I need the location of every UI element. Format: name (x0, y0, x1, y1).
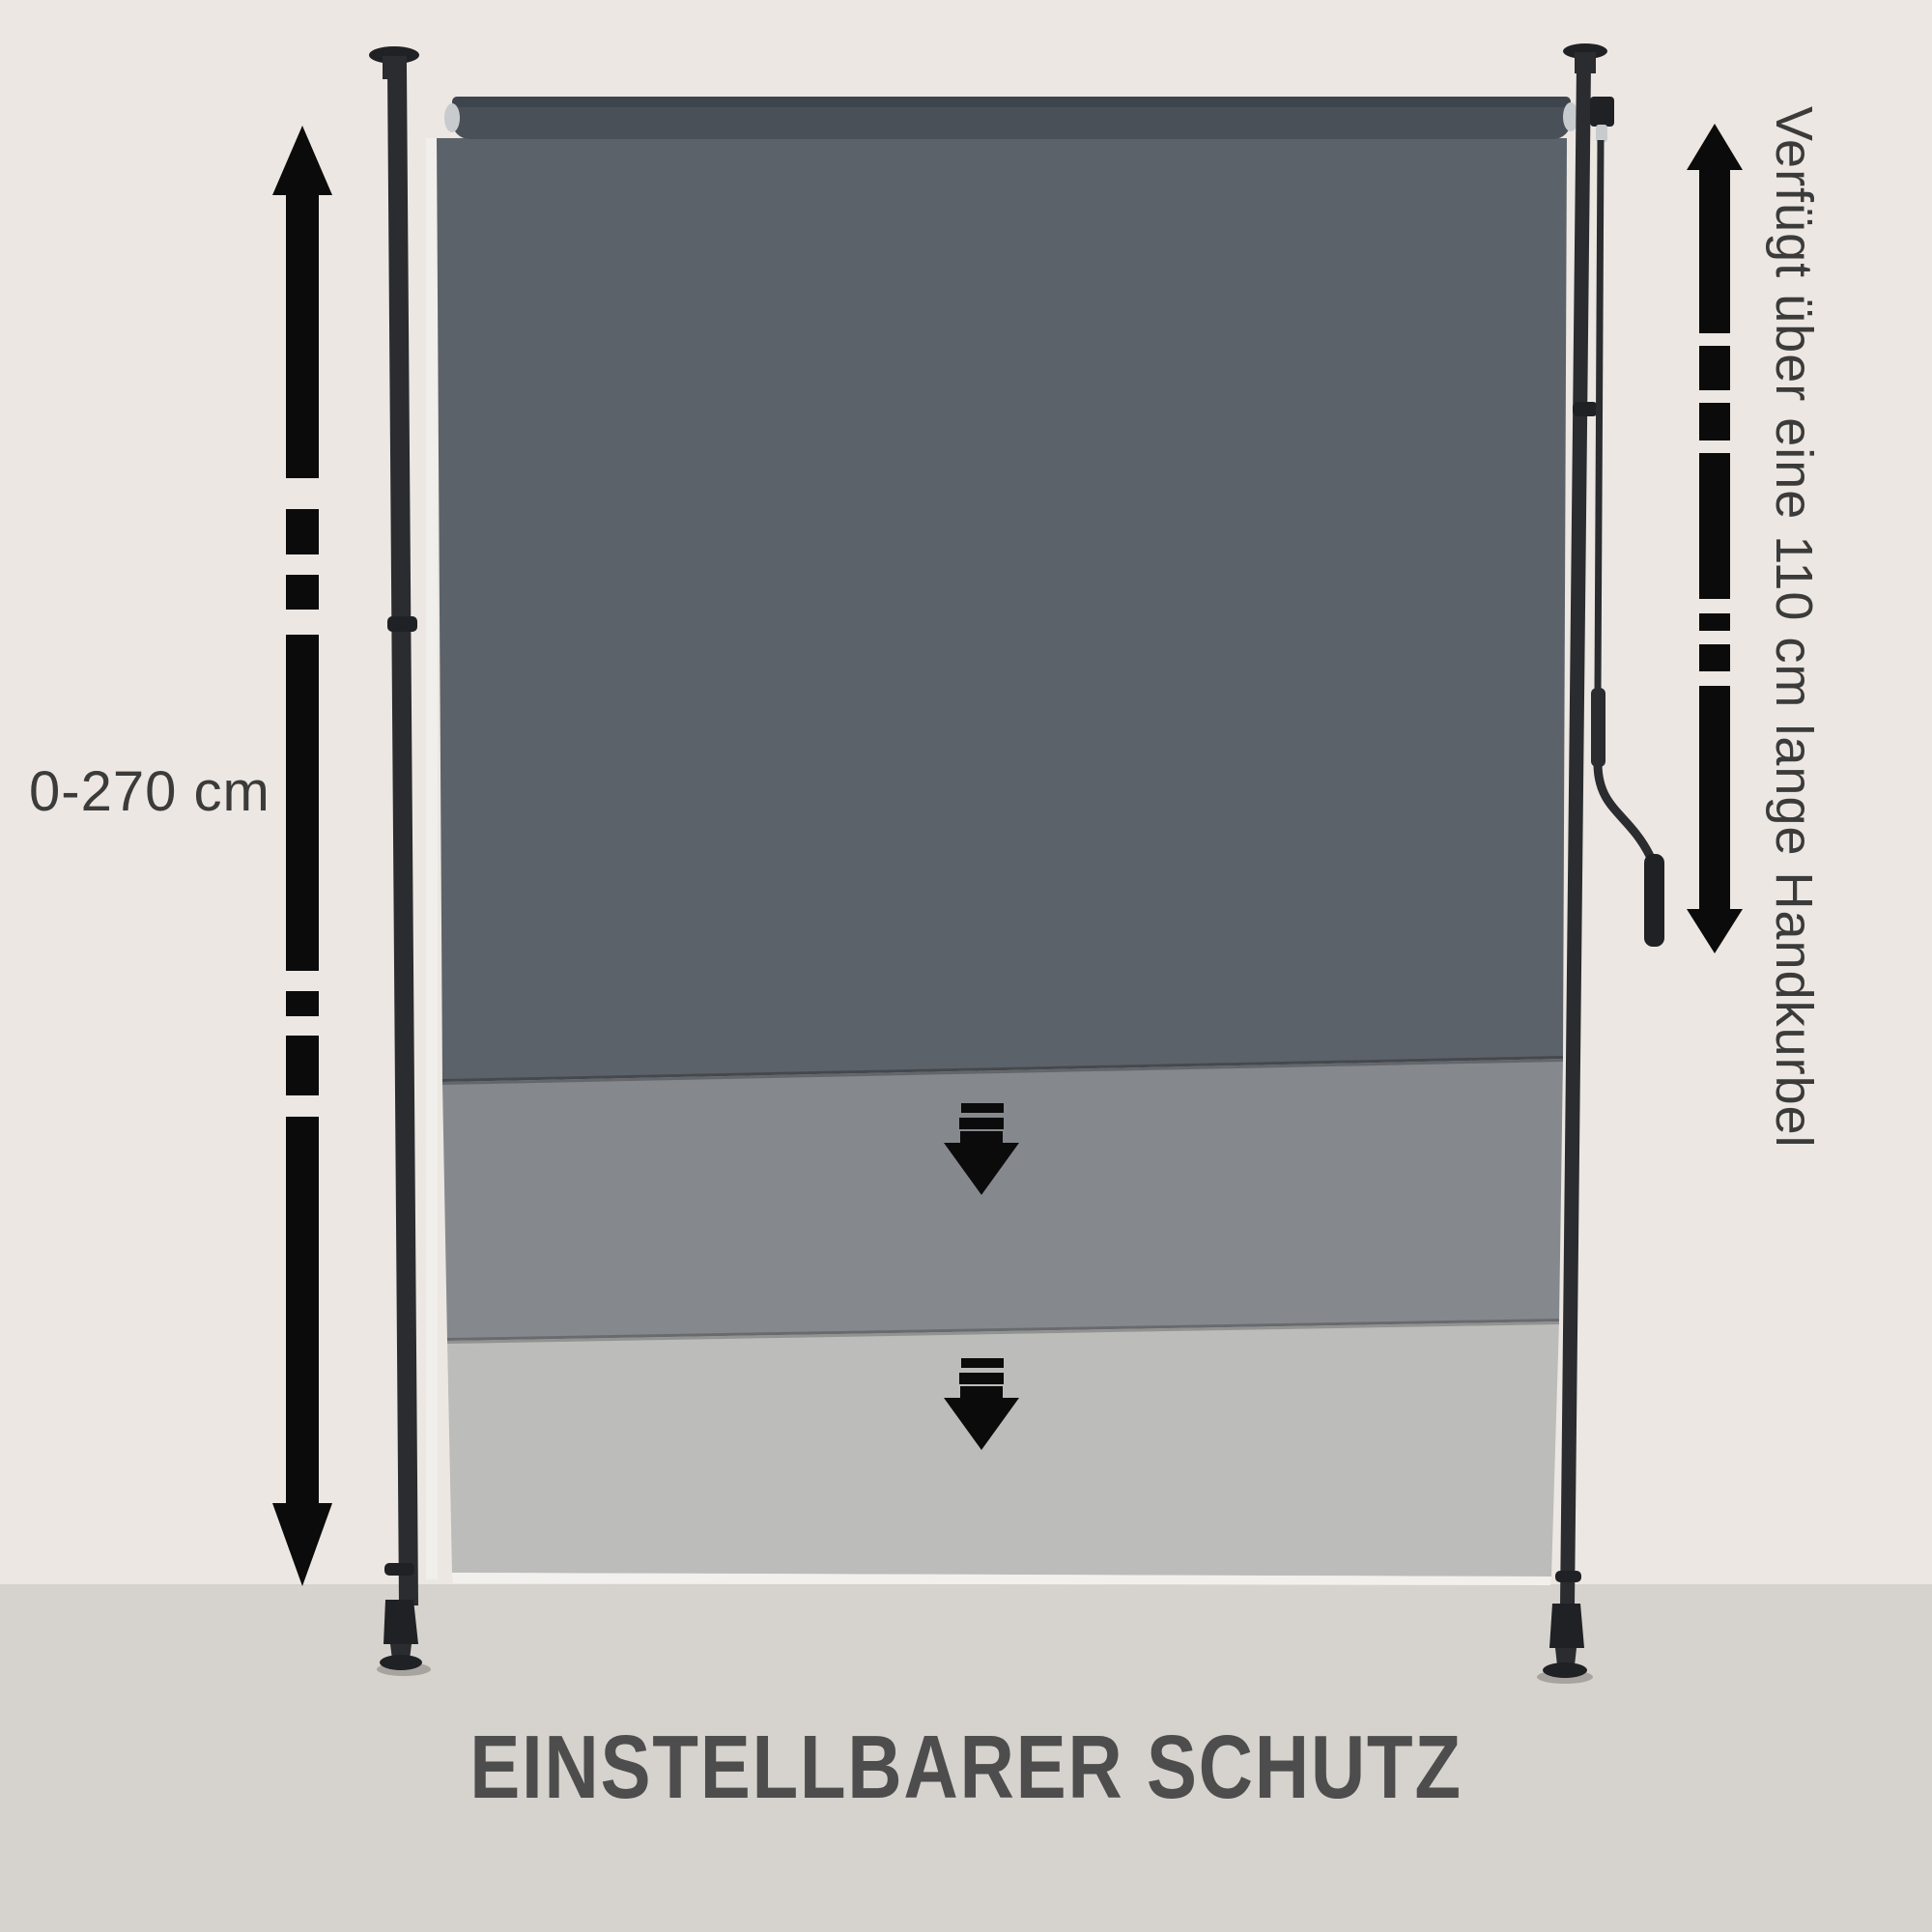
crank-rod (1598, 140, 1601, 691)
crank-connector (1596, 125, 1607, 142)
left-pole-joint-collar (387, 616, 417, 632)
roller-tube (444, 97, 1578, 139)
left-pole-tube (387, 68, 418, 1605)
fabric-left-highlight (426, 138, 438, 1579)
left-foot-base (380, 1655, 422, 1670)
blind-assembly-illustration (0, 0, 1932, 1932)
height-range-label: 0-270 cm (29, 759, 270, 824)
crank-rod-coupler (1591, 688, 1605, 767)
right-pole-lower-collar (1555, 1571, 1581, 1582)
fabric-panels (437, 138, 1567, 1585)
crank-length-arrow-icon (1687, 124, 1743, 953)
fabric-panel-stage-2 (442, 1059, 1563, 1341)
roller-tube-top-edge (452, 97, 1571, 107)
crank-length-label: Verfügt über eine 110 cm lange Handkurbe… (1764, 106, 1824, 1149)
fabric-panel-stage-1 (437, 138, 1567, 1082)
page-title: EINSTELLBARER SCHUTZ (155, 1716, 1777, 1819)
left-rubber-foot-icon (384, 1600, 418, 1644)
right-rubber-foot-icon (1549, 1604, 1584, 1648)
right-pole-joint-collar (1573, 402, 1598, 416)
hand-crank (1590, 97, 1664, 947)
crank-gearbox (1590, 97, 1614, 127)
crank-bend (1598, 765, 1650, 856)
left-pole-lower-collar (384, 1563, 414, 1576)
height-range-arrow-icon (272, 126, 332, 1586)
crank-handle-grip (1644, 854, 1664, 947)
left-pole (369, 46, 431, 1676)
roller-tube-endcap-left (444, 103, 460, 132)
right-foot-base (1543, 1662, 1587, 1678)
product-diagram: 0-270 cm Verfügt über eine 110 cm lange … (0, 0, 1932, 1932)
